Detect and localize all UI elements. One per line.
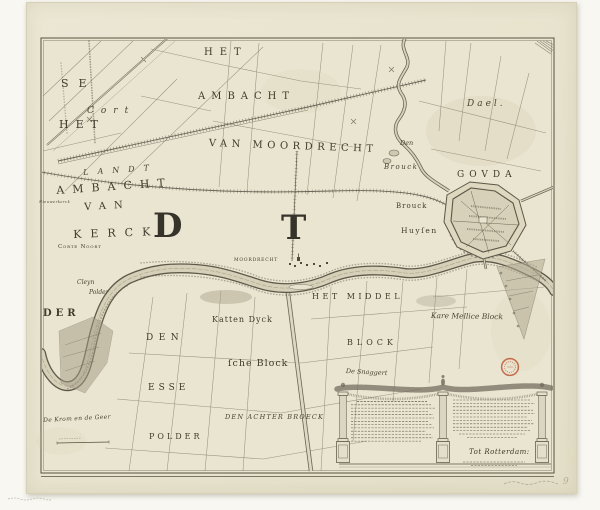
map-sheet: HET AMBACHT VAN MOORDRECHT Dael. GOVDA D… [26,2,577,494]
scan-background: HET AMBACHT VAN MOORDRECHT Dael. GOVDA D… [0,0,600,510]
pencil-number: 9 [563,477,569,487]
pencil-mark-bottom-right [502,476,562,490]
map-engraving [27,3,576,493]
pencil-mark-bottom-left [6,494,56,504]
